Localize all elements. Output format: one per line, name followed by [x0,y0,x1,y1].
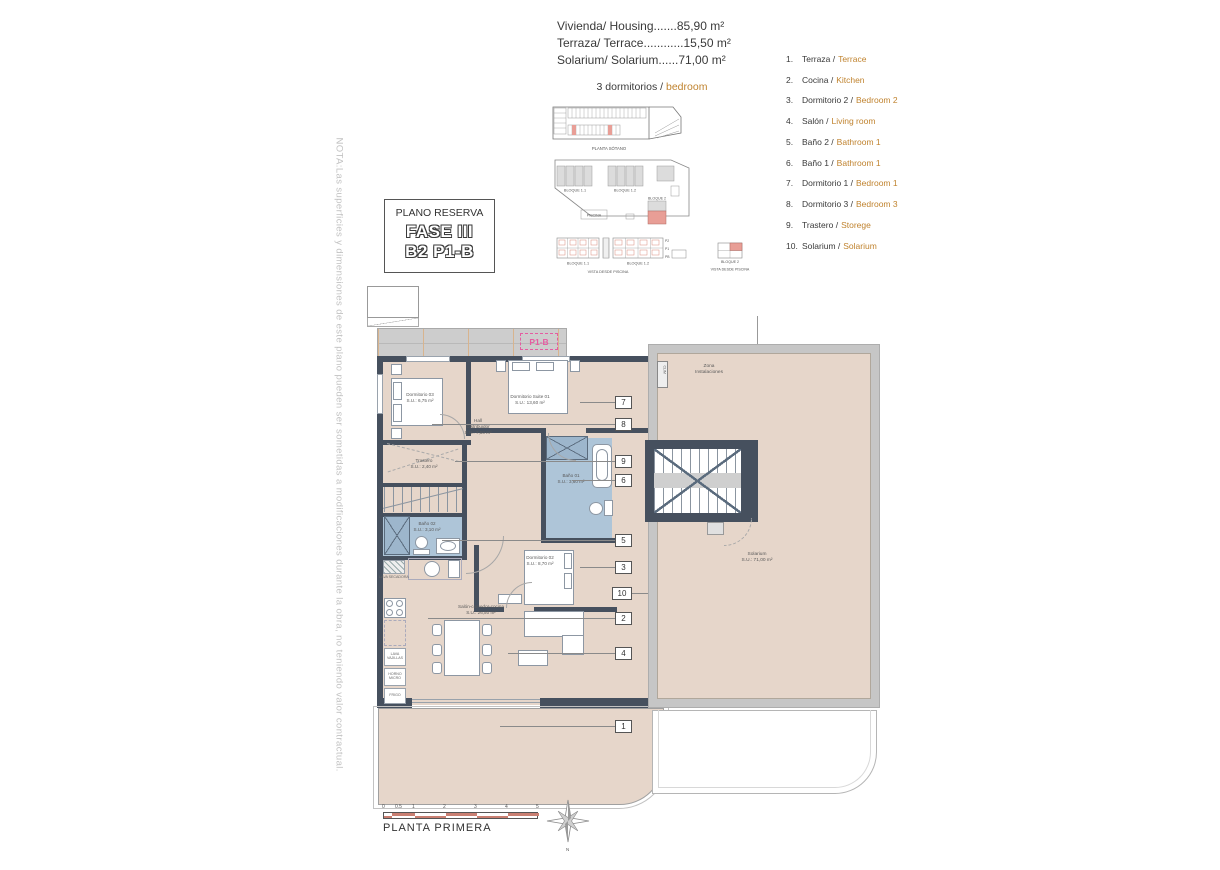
sofa-chaise [562,635,584,655]
nightstand [391,428,402,439]
bedrooms-line: 3 dormitorios / bedroom [557,81,747,93]
kitchen-sink [424,561,440,577]
highlighted-bloque2-elev-unit [730,243,742,251]
counter-box [448,560,460,578]
scale-seg [384,816,392,819]
highlighted-bloque2-unit [648,211,666,224]
highlighted-parking-stall [572,125,576,135]
legend-item-6: 6.Baño 1 /Bathroom 1 [786,158,881,168]
room-label-suite01: Dormitorio Suite 01S.U.: 13,60 m² [510,394,549,406]
chair [482,644,492,656]
callout-9: 9 [615,455,632,468]
bloque12-site-label: BLOQUE 1.2 [614,189,636,193]
title-box: PLANO RESERVA FASE III B2 P1-B [384,199,495,273]
bloque2-site-label: BLOQUE 2 [648,197,666,201]
room-label-dormitorio03: Dormitorio 03S.U.: 6,75 m² [406,392,434,404]
nightstand [391,364,402,375]
bloque12-elev-label: BLOQUE 1.2 [627,262,649,266]
bedrooms-es: 3 dormitorios / [597,81,664,93]
scale-bar [383,812,538,819]
room-label-trastero: TrasteroS.U.: 2,40 m² [410,458,437,470]
callout-leader [508,653,615,654]
callout-1: 1 [615,720,632,733]
solarium-lower-inner [658,710,871,788]
piscina-label: PISCINA [587,213,602,217]
burner [396,609,403,616]
toilet [415,536,428,549]
room-legend: 1.Terraza /Terrace 2.Cocina /Kitchen 3.D… [786,54,966,264]
callout-10: 10 [612,587,632,600]
scale-seg [400,813,416,816]
pillow [393,382,402,400]
callout-7: 7 [615,396,632,409]
callout-4: 4 [615,647,632,660]
basement-plan-diagram: PLANTA SÓTANO [551,103,685,155]
kitchen-cabinet [384,620,406,646]
dishwasher: LAVA VAJILLAS [384,648,406,666]
room-label-dormitorio02: Dormitorio 02S.U.: 8,70 m² [526,555,554,567]
chair [482,662,492,674]
north-label: N [566,847,569,852]
burner [386,600,393,607]
legend-item-4: 4.Salón /Living room [786,116,875,126]
north-compass: N [545,798,591,856]
callout-leader [572,480,615,481]
legend-item-8: 8.Dormitorio 3 /Bedroom 3 [786,199,898,209]
bedrooms-en: bedroom [666,81,707,93]
legend-item-2: 2.Cocina /Kitchen [786,75,865,85]
window [406,356,450,362]
callout-3: 3 [615,561,632,574]
chair [432,644,442,656]
title-box-unit: B2 P1-B [385,242,494,262]
disclaimer-note: NOTA:Las superficies y dimensiones de es… [331,138,345,753]
zona-instalaciones-label: ZonaInstalaciones [683,364,735,377]
solarium-area-line: Solarium/ Solarium......71,00 m² [557,52,747,69]
oven-micro: HORNO MICRO [384,668,406,686]
callout-8: 8 [615,418,632,431]
sliding-door [412,702,540,703]
scale-seg [392,813,400,816]
solarium-label: SolariumS.U.: 71,00 m² [728,552,786,565]
awning-lines [367,318,419,327]
callout-2: 2 [615,612,632,625]
callout-leader [428,618,615,619]
site-plan-diagram: BLOQUE 1.1 BLOQUE 1.2 BLOQUE 2 PISCINA [551,158,693,232]
legend-item-9: 9.Trastero /Storege [786,220,871,230]
sink [440,541,456,551]
bloque11-site-label: BLOQUE 1.1 [564,189,586,193]
dining-table [444,620,480,676]
bathtub-inner [596,449,608,481]
chair [432,662,442,674]
toilet [589,502,603,515]
shower-bathroom2 [384,516,410,555]
legend-item-1: 1.Terraza /Terrace [786,54,866,64]
chair [482,624,492,636]
callout-leader [580,402,615,403]
section-mark [757,316,758,344]
clim-unit: CLIM [657,361,668,388]
elev-pb-label: PB [665,255,670,259]
callout-leader [500,726,615,727]
callout-leader [432,424,615,425]
fridge: FRIGO [384,688,406,704]
elev-p1-label: P1 [665,247,669,251]
nightstand [570,360,580,372]
sofa [524,611,584,637]
scale-seg [477,816,508,819]
vista-piscina-label-1: VISTA DESDE PISCINA [588,270,629,274]
pillow [393,404,402,422]
scale-seg [415,816,446,819]
chair [432,624,442,636]
terrace-area-line: Terraza/ Terrace............15,50 m² [557,35,747,52]
stair-cross-lines [654,449,741,513]
unit-tag: P1-B [520,333,558,350]
pillow [512,362,530,371]
area-summary: Vivienda/ Housing.......85,90 m² Terraza… [557,18,747,69]
bloque11-elev-label: BLOQUE 1.1 [567,262,589,266]
legend-item-3: 3.Dormitorio 2 /Bedroom 2 [786,95,898,105]
basement-plan-label: PLANTA SÓTANO [592,146,627,151]
elev-p2-label: P2 [665,239,669,243]
solarium-floor [657,353,871,699]
stair-door-stub [707,522,724,535]
title-box-phase: FASE III [385,222,494,242]
room-label-bano2: Baño 02S.U.: 3,10 m² [413,521,440,533]
vista-piscina-label-2: VISTA DESDE PISCINA [711,268,750,272]
title-box-title: PLANO RESERVA [385,207,494,219]
sliding-door [412,699,540,700]
callout-6: 6 [615,474,632,487]
legend-item-10: 10.Solarium /Solarium [786,241,877,251]
pillow [564,573,572,589]
window [377,374,383,414]
elevation-diagram: P2 P1 PB BLOQUE 1.1 BLOQUE 1.2 VISTA DES… [551,231,751,279]
toilet-tank [413,549,430,555]
plan-name: PLANTA PRIMERA [383,822,492,834]
nightstand [496,360,506,372]
floor-plan-sheet: Vivienda/ Housing.......85,90 m² Terraza… [0,0,1220,870]
scale-seg [446,813,477,816]
bloque2-elev-label: BLOQUE 2 [721,260,739,264]
callout-leader [442,540,615,541]
housing-area-line: Vivienda/ Housing.......85,90 m² [557,18,747,35]
pillow [564,553,572,569]
legend-item-7: 7.Dormitorio 1 /Bedroom 1 [786,178,898,188]
legend-item-5: 5.Baño 2 /Bathroom 1 [786,137,881,147]
upper-balcony-outline [367,286,419,318]
burner [386,609,393,616]
room-label-hall: HallDistribuidorS.U.: 7,50 m² [464,418,491,437]
washer-label: LAVA SECADORA [377,576,411,580]
pillow [536,362,554,371]
room-label-salon: Salón-comedor-cocinaS.U.: 26,50 m² [458,604,504,616]
toilet-tank [604,500,613,516]
washer-dryer [383,560,405,574]
callout-5: 5 [615,534,632,547]
callout-leader [455,461,615,462]
callout-leader [580,567,615,568]
burner [396,600,403,607]
scale-seg [508,813,539,816]
